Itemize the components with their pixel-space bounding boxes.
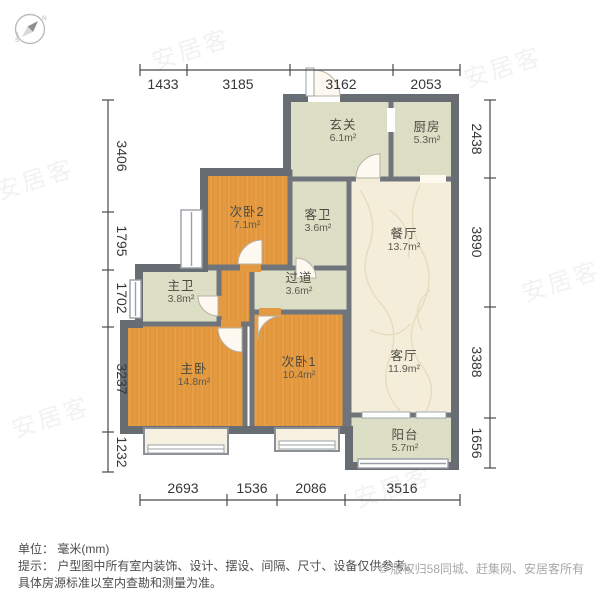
entry-door-leaf bbox=[306, 68, 314, 96]
dim-left-2: 1795 bbox=[114, 225, 130, 256]
dim-right-3: 3388 bbox=[469, 346, 485, 377]
floorplan-page: 安居客 安居客 安居客 安居客 安居客 安居客 N S bbox=[0, 0, 600, 600]
tip-note-line1: 提示： 户型图中所有室内装饰、设计、摆设、间隔、尺寸、设备仅供参考。 bbox=[18, 558, 417, 575]
balcony-sliding-door bbox=[416, 412, 446, 418]
floorplan-drawing bbox=[0, 0, 600, 600]
footer-notes: 单位： 毫米(mm) 提示： 户型图中所有室内装饰、设计、摆设、间隔、尺寸、设备… bbox=[18, 541, 417, 592]
dim-bottom-1: 2693 bbox=[167, 480, 198, 496]
room-bedroom1 bbox=[252, 312, 345, 430]
dim-right-1: 2438 bbox=[469, 123, 485, 154]
dim-left-1: 3406 bbox=[114, 140, 130, 171]
room-guest-bath bbox=[290, 179, 349, 268]
copyright-note: © 版权归58同城、赶集网、安居客所有 bbox=[378, 560, 584, 577]
room-kitchen bbox=[391, 98, 455, 179]
dim-bottom-3: 2086 bbox=[295, 480, 326, 496]
balcony-sliding-door bbox=[362, 412, 410, 418]
dim-top-1: 1433 bbox=[147, 76, 178, 92]
dim-right-2: 3890 bbox=[469, 226, 485, 257]
room-connector bbox=[219, 268, 252, 324]
dim-bottom-2: 1536 bbox=[236, 480, 267, 496]
dim-left-5: 1232 bbox=[114, 436, 130, 467]
dim-bottom-4: 3516 bbox=[386, 480, 417, 496]
unit-note: 单位： 毫米(mm) bbox=[18, 541, 417, 558]
dim-top-4: 2053 bbox=[410, 76, 441, 92]
room-dining-living bbox=[349, 179, 455, 415]
dim-top-2: 3185 bbox=[222, 76, 253, 92]
dim-right-4: 1656 bbox=[469, 427, 485, 458]
dim-left-4: 3237 bbox=[114, 363, 130, 394]
tip-note-line2: 具体房源标准以室内查勘和测量为准。 bbox=[18, 575, 417, 592]
dim-top-3: 3162 bbox=[325, 76, 356, 92]
dim-left-3: 1702 bbox=[114, 282, 130, 313]
